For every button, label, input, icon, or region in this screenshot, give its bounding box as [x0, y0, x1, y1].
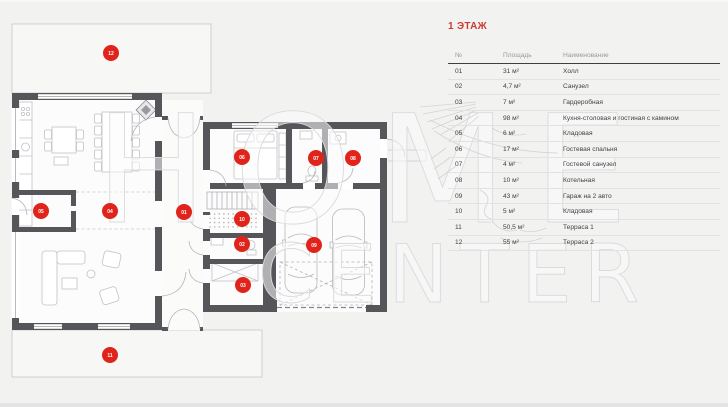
- room-marker-label: 04: [107, 209, 113, 215]
- room-number: 03: [455, 99, 503, 106]
- room-number: 08: [455, 177, 503, 184]
- room-name: Кухня-столовая и гостиная с камином: [563, 115, 720, 122]
- room-area: 31 м²: [503, 68, 563, 75]
- room-area: 17 м²: [503, 146, 563, 153]
- room-area: 98 м²: [503, 115, 563, 122]
- table-row: 0617 м²Гостевая спальня: [448, 142, 720, 158]
- room-marker-label: 02: [239, 242, 245, 248]
- room-marker-label: 05: [38, 209, 44, 215]
- legend: 1 ЭТАЖ № Площадь Наименование 0131 м²Хол…: [448, 21, 720, 251]
- room-number: 10: [455, 208, 503, 215]
- room-area: 5 м²: [503, 208, 563, 215]
- column-header-number: №: [455, 52, 503, 59]
- table-row: 037 м²Гардеробная: [448, 95, 720, 111]
- page-bottom-edge: [0, 403, 728, 407]
- room-marker-label: 10: [239, 217, 245, 223]
- room-number: 09: [455, 193, 503, 200]
- table-row: 074 м²Гостевой санузел: [448, 158, 720, 174]
- room-name: Гостевой санузел: [563, 161, 720, 168]
- table-row: 0810 м²Котельная: [448, 173, 720, 189]
- table-row: 1255 м²Терраса 2: [448, 236, 720, 252]
- room-area: 4,7 м²: [503, 83, 563, 90]
- room-number: 07: [455, 161, 503, 168]
- room-marker-label: 03: [240, 283, 246, 289]
- table-row: 105 м²Кладовая: [448, 204, 720, 220]
- room-name: Кладовая: [563, 130, 720, 137]
- room-name: Кладовая: [563, 208, 720, 215]
- room-number: 11: [455, 224, 503, 231]
- room-name: Терраса 2: [563, 239, 720, 246]
- room-number: 02: [455, 83, 503, 90]
- column-header-name: Наименование: [563, 52, 720, 59]
- room-area: 6 м²: [503, 130, 563, 137]
- room-number: 12: [455, 239, 503, 246]
- room-name: Санузел: [563, 83, 720, 90]
- legend-table-header: № Площадь Наименование: [448, 48, 720, 64]
- room-marker-label: 07: [313, 156, 319, 162]
- room-area: 50,5 м²: [503, 224, 563, 231]
- room-name: Гараж на 2 авто: [563, 193, 720, 200]
- room-area: 43 м²: [503, 193, 563, 200]
- table-row: 0943 м²Гараж на 2 авто: [448, 189, 720, 205]
- legend-table: № Площадь Наименование 0131 м²Холл024,7 …: [448, 48, 720, 251]
- room-name: Гостевая спальня: [563, 146, 720, 153]
- room-area: 55 м²: [503, 239, 563, 246]
- room-area: 7 м²: [503, 99, 563, 106]
- legend-table-rows: 0131 м²Холл024,7 м²Санузел037 м²Гардероб…: [448, 64, 720, 251]
- table-row: 056 м²Кладовая: [448, 126, 720, 142]
- terrace-1: [12, 330, 262, 377]
- page-title: 1 ЭТАЖ: [448, 21, 720, 32]
- room-marker-label: 06: [239, 155, 245, 161]
- room-name: Холл: [563, 68, 720, 75]
- table-row: 1150,5 м²Терраса 1: [448, 220, 720, 236]
- room-number: 05: [455, 130, 503, 137]
- room-name: Терраса 1: [563, 224, 720, 231]
- room-number: 06: [455, 146, 503, 153]
- room-number: 04: [455, 115, 503, 122]
- room-marker-label: 08: [350, 156, 356, 162]
- table-row: 0498 м²Кухня-столовая и гостиная с камин…: [448, 111, 720, 127]
- room-number: 01: [455, 68, 503, 75]
- room-name: Котельная: [563, 177, 720, 184]
- room-area: 4 м²: [503, 161, 563, 168]
- table-row: 0131 м²Холл: [448, 64, 720, 80]
- room-marker-label: 11: [107, 353, 113, 359]
- room-marker-label: 12: [108, 51, 114, 57]
- room-name: Гардеробная: [563, 99, 720, 106]
- room-marker-label: 01: [181, 210, 187, 216]
- room-area: 10 м²: [503, 177, 563, 184]
- table-row: 024,7 м²Санузел: [448, 80, 720, 96]
- room-marker-label: 09: [311, 243, 317, 249]
- column-header-area: Площадь: [503, 52, 563, 59]
